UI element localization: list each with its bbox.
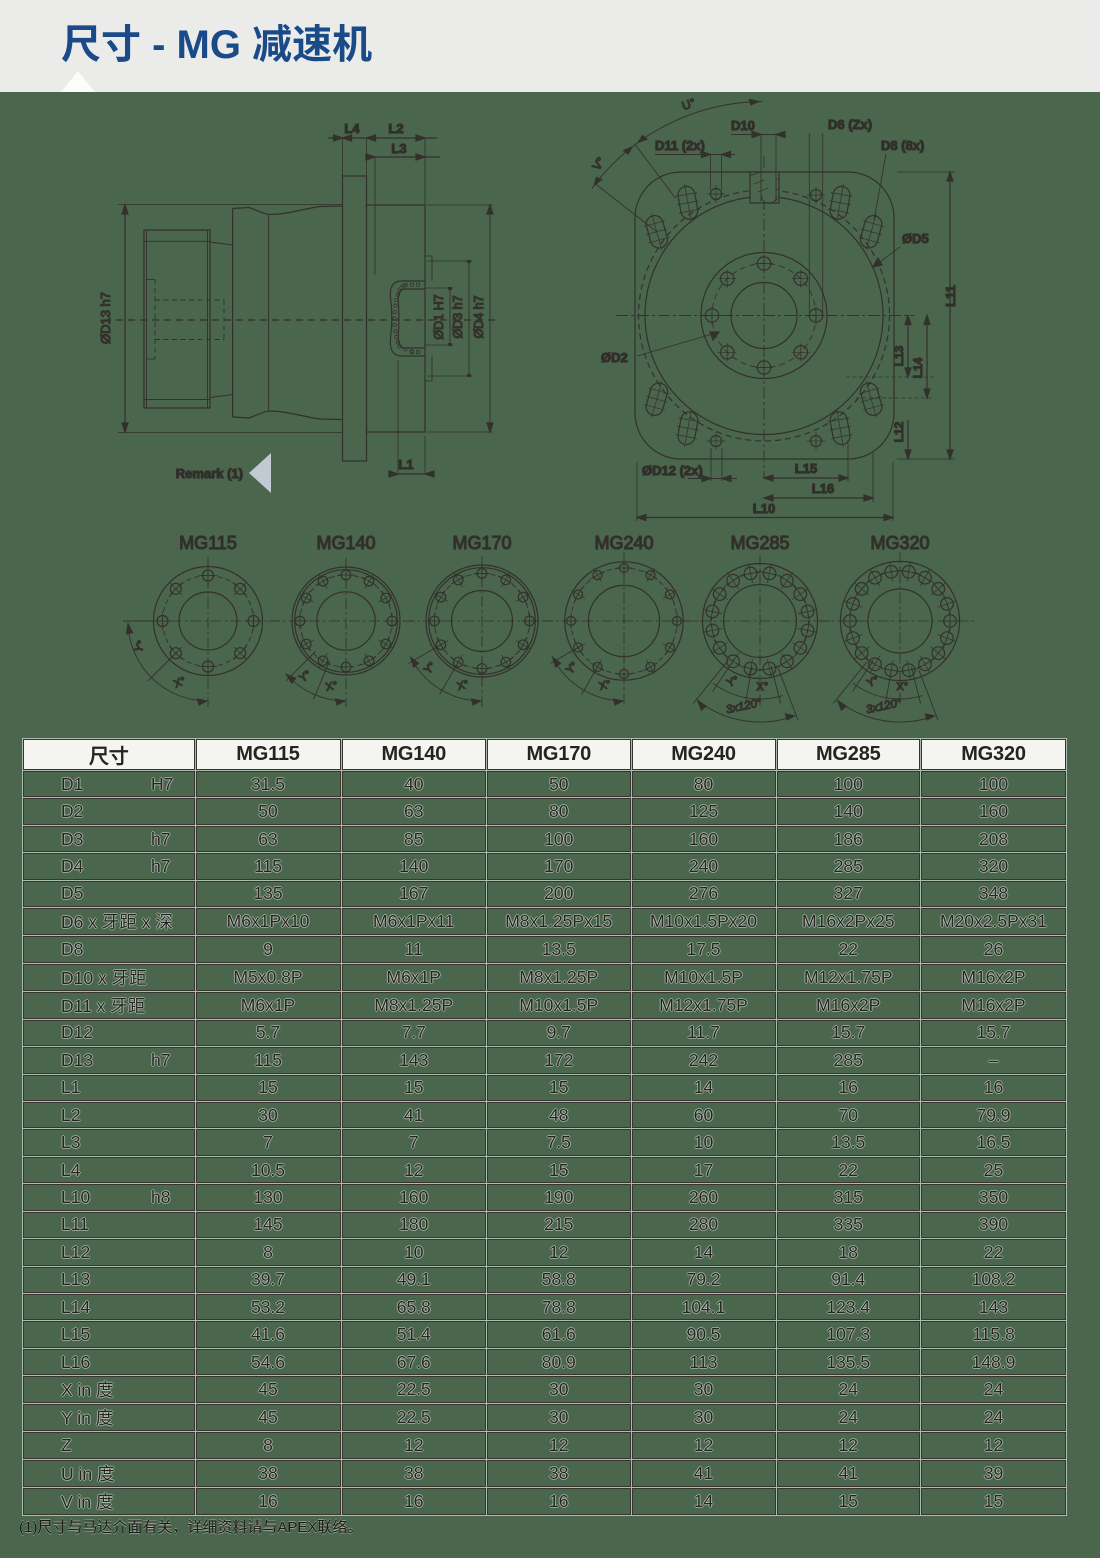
svg-text:Remark (1): Remark (1) (176, 466, 243, 481)
svg-text:Y°: Y° (725, 674, 741, 690)
svg-text:L11: L11 (943, 285, 958, 307)
svg-text:MG320: MG320 (870, 533, 929, 553)
svg-text:MG115: MG115 (179, 533, 237, 553)
svg-text:L14: L14 (911, 357, 925, 378)
svg-text:L15: L15 (795, 461, 817, 476)
svg-text:X°: X° (456, 678, 470, 693)
svg-text:Y°: Y° (133, 639, 149, 654)
svg-text:ØD4 h7: ØD4 h7 (472, 295, 486, 338)
svg-text:MG285: MG285 (730, 533, 789, 553)
svg-text:V°: V° (589, 154, 608, 173)
svg-text:L4: L4 (344, 121, 360, 136)
svg-text:ØD5: ØD5 (902, 231, 929, 246)
svg-text:Y°: Y° (564, 660, 581, 677)
svg-text:L1: L1 (398, 457, 413, 472)
svg-text:X°: X° (172, 675, 187, 691)
svg-text:X°: X° (896, 681, 908, 693)
svg-text:ØD2: ØD2 (601, 350, 628, 365)
svg-text:X°: X° (598, 678, 612, 693)
svg-text:ØD13 h7: ØD13 h7 (98, 292, 113, 344)
svg-text:L16: L16 (812, 481, 834, 496)
svg-text:X°: X° (756, 681, 768, 693)
svg-text:MG240: MG240 (594, 533, 653, 553)
svg-text:L12: L12 (892, 421, 906, 442)
svg-text:X°: X° (325, 680, 339, 694)
svg-text:U°: U° (680, 95, 697, 113)
svg-text:D11 (2x): D11 (2x) (655, 138, 705, 153)
svg-text:D10: D10 (731, 118, 755, 133)
svg-text:3x120°: 3x120° (865, 697, 903, 716)
svg-text:ØD12 (2x): ØD12 (2x) (642, 463, 703, 478)
svg-text:L13: L13 (892, 345, 906, 366)
svg-text:Y°: Y° (297, 668, 313, 685)
svg-text:L3: L3 (391, 141, 406, 156)
svg-text:L2: L2 (388, 121, 403, 136)
svg-text:ØD3 h7: ØD3 h7 (451, 295, 465, 338)
svg-text:D6 (Zx): D6 (Zx) (828, 117, 872, 132)
svg-text:3x120°: 3x120° (725, 697, 763, 716)
svg-text:MG140: MG140 (316, 533, 375, 553)
svg-text:D8 (8x): D8 (8x) (881, 138, 924, 153)
svg-text:Y°: Y° (422, 660, 439, 677)
svg-text:ØD1 H7: ØD1 H7 (432, 294, 446, 339)
svg-text:L10: L10 (753, 501, 775, 516)
svg-text:MG170: MG170 (452, 533, 511, 553)
